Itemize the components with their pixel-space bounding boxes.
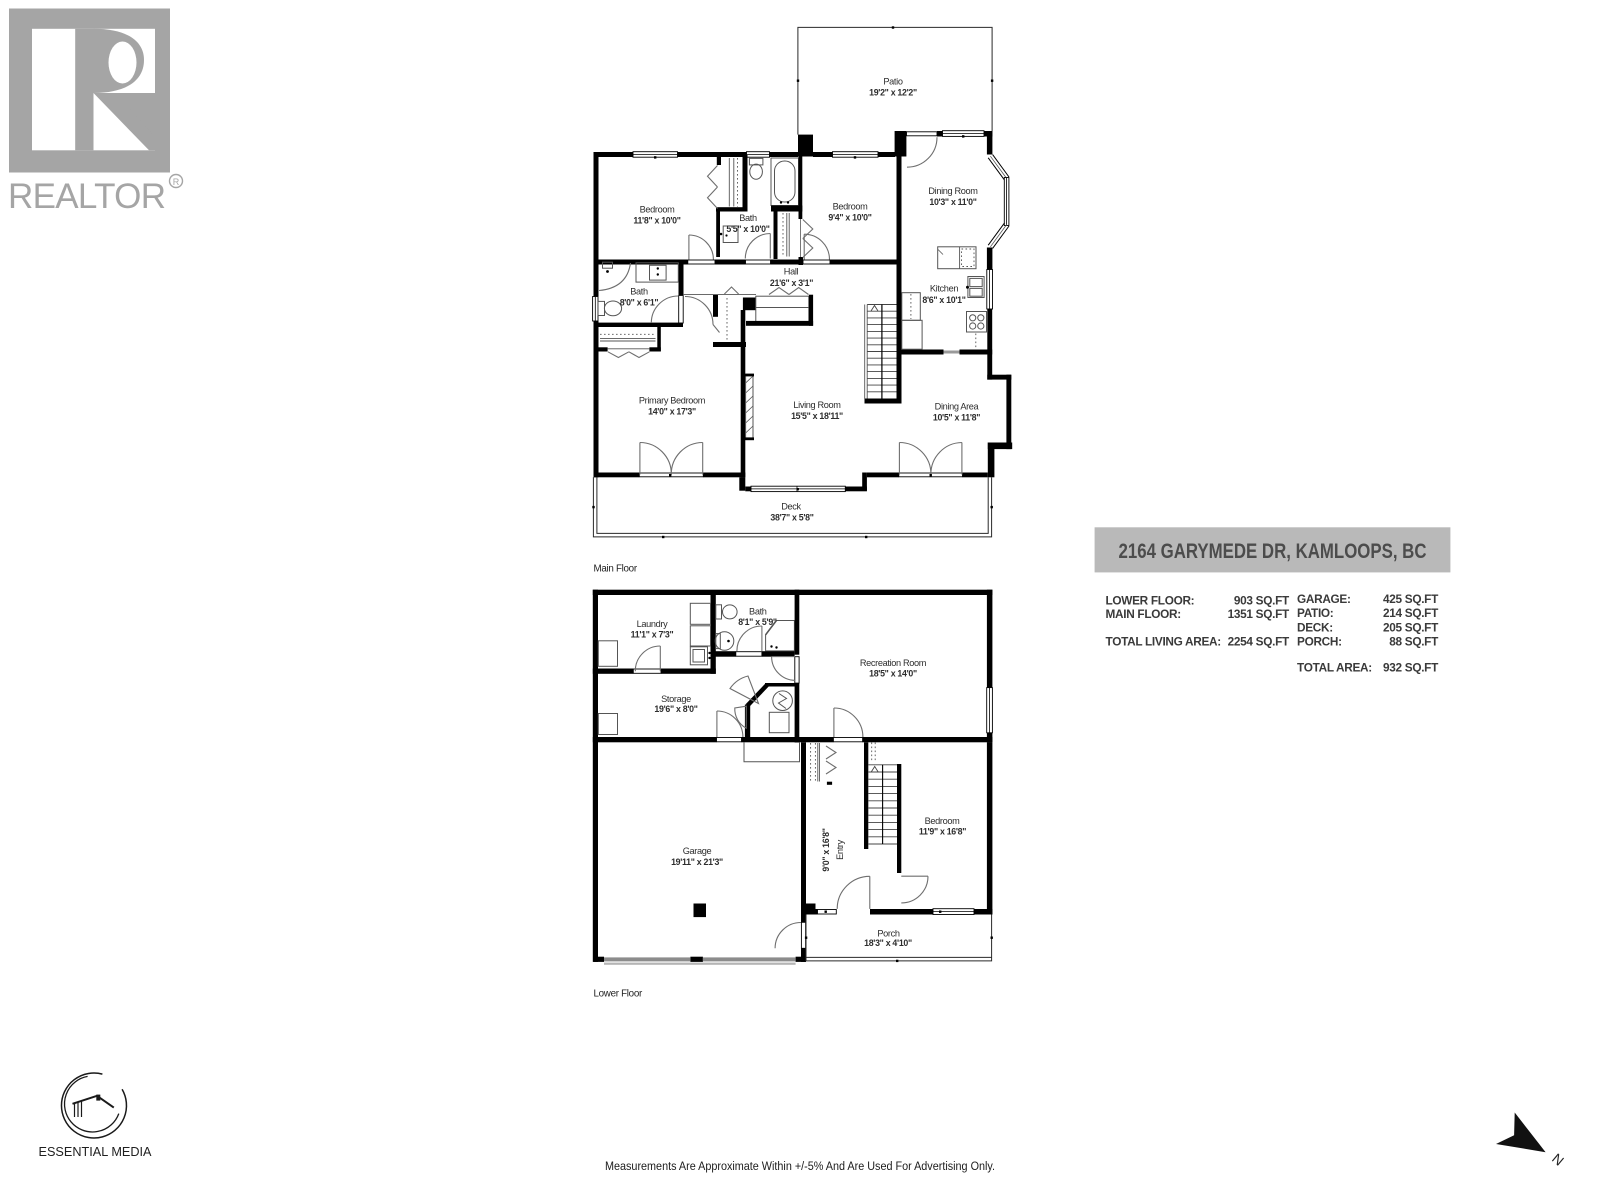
svg-text:MAIN FLOOR:: MAIN FLOOR: [1106,607,1181,621]
svg-text:8'0" x 6'1": 8'0" x 6'1" [620,298,659,308]
svg-text:Dining Room: Dining Room [928,186,978,196]
svg-text:LOWER FLOOR:: LOWER FLOOR: [1106,593,1195,607]
svg-text:Bath: Bath [630,287,648,297]
svg-text:2254 SQ.FT: 2254 SQ.FT [1228,634,1290,648]
svg-text:Porch: Porch [877,929,899,939]
svg-text:425 SQ.FT: 425 SQ.FT [1383,592,1439,606]
svg-text:Bath: Bath [739,213,757,223]
svg-text:Primary Bedroom: Primary Bedroom [639,396,706,406]
svg-text:PORCH:: PORCH: [1297,634,1342,648]
svg-text:R: R [173,177,180,187]
svg-text:Main Floor: Main Floor [594,564,638,575]
svg-text:5'5" x 10'0": 5'5" x 10'0" [726,224,769,234]
svg-text:2164 GARYMEDE DR, KAMLOOPS, BC: 2164 GARYMEDE DR, KAMLOOPS, BC [1119,540,1427,563]
svg-text:ESSENTIAL MEDIA: ESSENTIAL MEDIA [39,1145,153,1159]
svg-text:18'5" x 14'0": 18'5" x 14'0" [869,669,917,679]
svg-text:TOTAL AREA:: TOTAL AREA: [1297,660,1372,674]
svg-text:214 SQ.FT: 214 SQ.FT [1383,606,1439,620]
svg-text:21'6" x 3'1": 21'6" x 3'1" [770,278,813,288]
svg-text:19'11" x 21'3": 19'11" x 21'3" [671,857,723,867]
svg-text:Deck: Deck [781,502,801,512]
svg-text:Hall: Hall [784,267,799,277]
svg-text:Kitchen: Kitchen [930,284,958,294]
svg-text:Storage: Storage [661,694,691,704]
svg-text:Dining Area: Dining Area [935,402,980,412]
svg-text:REALTOR: REALTOR [8,177,166,216]
svg-text:Patio: Patio [883,77,902,87]
svg-text:10'3" x 11'0": 10'3" x 11'0" [929,197,976,207]
svg-text:8'1" x 5'9": 8'1" x 5'9" [738,617,777,627]
svg-text:Recreation Room: Recreation Room [860,658,927,668]
svg-text:1351 SQ.FT: 1351 SQ.FT [1228,607,1290,621]
svg-text:Bedroom: Bedroom [833,202,869,212]
svg-text:19'6" x 8'0": 19'6" x 8'0" [654,704,697,714]
svg-text:Lower Floor: Lower Floor [594,989,643,1000]
svg-text:88 SQ.FT: 88 SQ.FT [1389,634,1439,648]
svg-text:10'5" x 11'8": 10'5" x 11'8" [933,413,980,423]
svg-text:932 SQ.FT: 932 SQ.FT [1383,660,1439,674]
svg-text:Bedroom: Bedroom [640,205,676,215]
svg-text:PATIO:: PATIO: [1297,606,1333,620]
svg-text:205 SQ.FT: 205 SQ.FT [1383,620,1439,634]
svg-text:19'2" x 12'2": 19'2" x 12'2" [869,87,917,97]
svg-text:903 SQ.FT: 903 SQ.FT [1234,593,1290,607]
svg-text:Bath: Bath [749,607,767,617]
svg-text:DECK:: DECK: [1297,620,1333,634]
svg-text:GARAGE:: GARAGE: [1297,592,1351,606]
svg-text:9'0" x 16'8": 9'0" x 16'8" [821,828,831,871]
svg-text:Living Room: Living Room [793,400,841,410]
svg-text:11'1" x 7'3": 11'1" x 7'3" [631,629,674,639]
svg-text:Entry: Entry [835,839,845,859]
svg-text:38'7" x 5'8": 38'7" x 5'8" [770,512,813,522]
svg-text:8'6" x 10'1": 8'6" x 10'1" [922,295,965,305]
svg-text:Measurements Are Approximate W: Measurements Are Approximate Within +/-5… [605,1159,995,1173]
svg-text:Garage: Garage [683,846,712,856]
svg-text:11'9" x 16'8": 11'9" x 16'8" [919,826,966,836]
svg-text:18'3" x 4'10": 18'3" x 4'10" [864,938,912,948]
svg-text:15'5" x 18'11": 15'5" x 18'11" [791,411,843,421]
svg-text:14'0" x 17'3": 14'0" x 17'3" [648,407,696,417]
svg-text:Laundry: Laundry [637,619,669,629]
svg-text:11'8" x 10'0": 11'8" x 10'0" [633,215,680,225]
svg-text:Bedroom: Bedroom [925,816,961,826]
svg-text:TOTAL LIVING AREA:: TOTAL LIVING AREA: [1106,634,1221,648]
svg-text:9'4" x 10'0": 9'4" x 10'0" [828,212,871,222]
